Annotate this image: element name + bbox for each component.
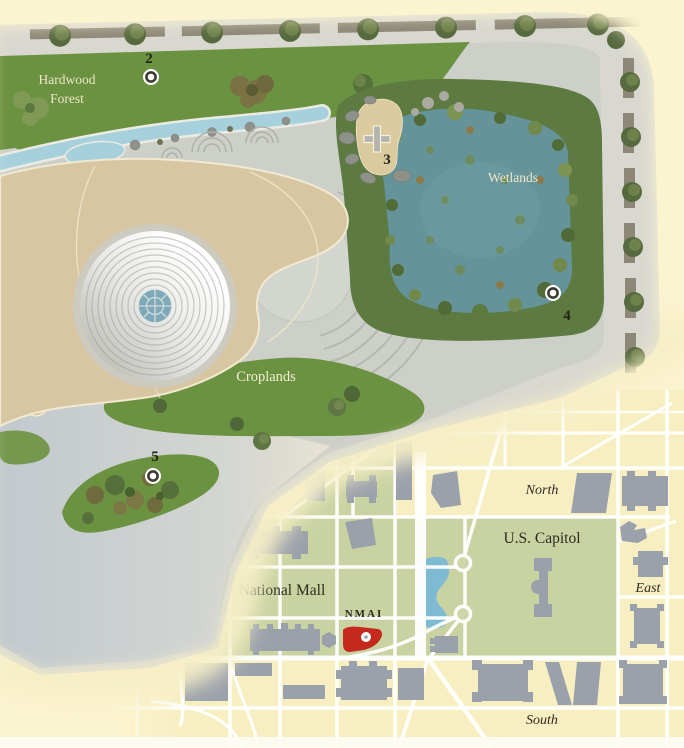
marker-4-number: 4: [563, 308, 571, 324]
fourth-street: [415, 452, 426, 658]
label-east: East: [635, 581, 662, 596]
peace-circle: [456, 556, 471, 571]
label-croplands: Croplands: [236, 369, 296, 385]
marker-3-number: 3: [383, 152, 391, 168]
dome: [73, 224, 237, 388]
label-nmai: NMAI: [345, 608, 384, 620]
marker-2-number: 2: [145, 51, 153, 67]
label-north: North: [525, 483, 559, 498]
garfield-circle: [456, 607, 471, 622]
marker-5-number: 5: [151, 449, 159, 465]
label-south: South: [526, 713, 558, 728]
label-hardwood-forest-line2: Forest: [50, 91, 84, 106]
label-us-capitol: U.S. Capitol: [503, 530, 580, 547]
label-wetlands: Wetlands: [488, 170, 538, 185]
label-hardwood-forest-line1: Hardwood: [39, 72, 96, 87]
bottom-edge-band: [0, 737, 684, 748]
nmai-map: North U.S. Capitol East West National Ma…: [0, 0, 684, 748]
